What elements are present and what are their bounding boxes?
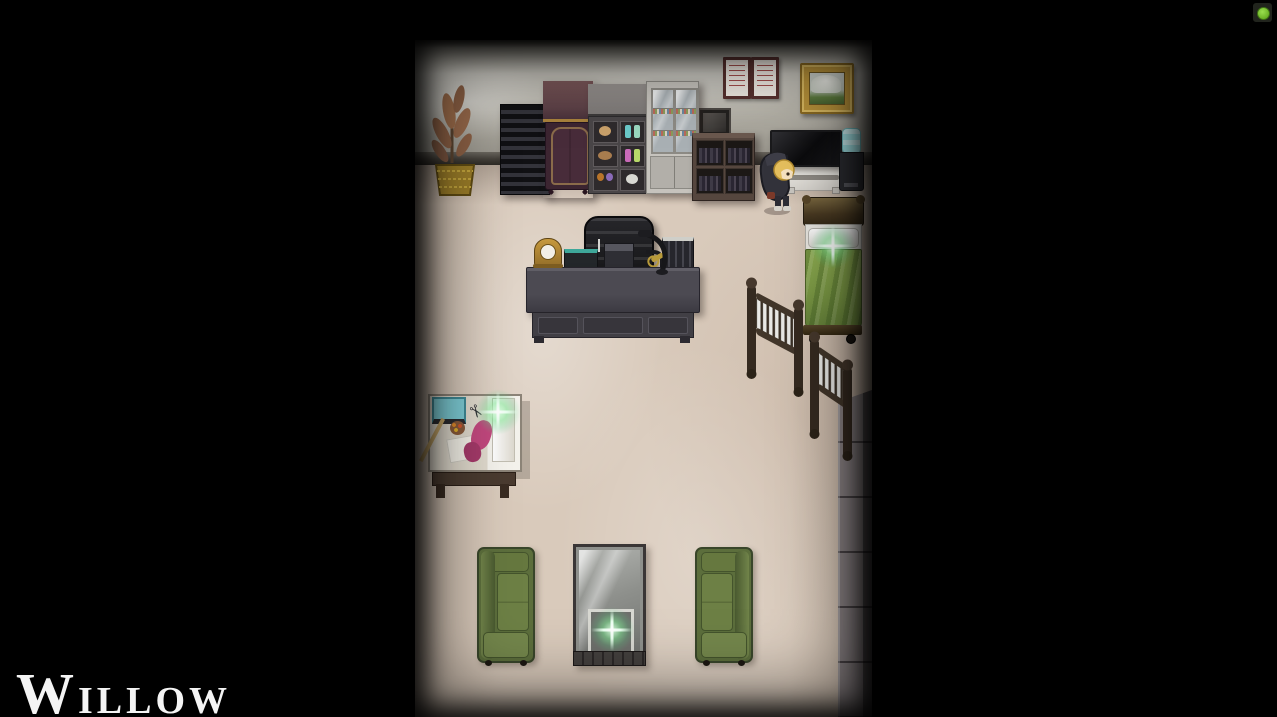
gold-framed-painting <box>800 63 854 114</box>
books <box>699 176 721 191</box>
desk-front-panel <box>532 312 694 338</box>
couch-armrest <box>483 632 529 658</box>
pastry-item <box>598 151 612 160</box>
display-case-body <box>588 116 649 194</box>
display-cell <box>593 169 618 191</box>
display-cell <box>620 145 645 167</box>
table-leg <box>436 484 445 498</box>
pen <box>598 239 600 252</box>
certificate-text-lines <box>729 65 745 89</box>
wall-display-content <box>703 113 726 132</box>
bookshelf-cubby <box>725 140 753 166</box>
display-cell <box>620 121 645 143</box>
certificate-frame-2 <box>751 57 779 99</box>
display-cell <box>620 169 645 191</box>
plate-item <box>626 174 638 184</box>
recording-indicator[interactable] <box>1252 2 1273 23</box>
couch-foot <box>738 660 745 666</box>
desk-lamp <box>630 227 670 275</box>
desk-drawer <box>648 317 688 334</box>
couch-right <box>695 547 753 663</box>
shelf-bottles <box>653 130 673 136</box>
bookshelf-cubby <box>696 140 724 166</box>
location-title-rest: ILLOW <box>78 680 231 717</box>
cooler-buttons <box>844 183 858 187</box>
shelf-bottles <box>676 108 696 114</box>
flower-item <box>606 173 613 181</box>
flower-item <box>597 173 604 181</box>
wardrobe-canopy <box>543 81 593 122</box>
wardrobe <box>543 81 593 198</box>
office-desk <box>526 267 698 343</box>
glass-pane <box>651 88 675 154</box>
books <box>728 176 750 191</box>
books <box>728 148 750 163</box>
sparkle-ray <box>812 245 854 248</box>
couch-armrest <box>701 632 747 658</box>
display-cell <box>593 121 618 143</box>
table-base <box>573 651 646 666</box>
plant-graphic <box>428 85 483 197</box>
certificate-text-lines <box>757 65 773 89</box>
couch-left <box>477 547 535 663</box>
character-sprite <box>757 148 797 216</box>
bottle-item <box>625 125 631 138</box>
sparkle-sewing-table[interactable] <box>475 389 521 435</box>
certificate-frame-1 <box>723 57 751 99</box>
couch-foot <box>520 660 527 666</box>
game-screen: ✂ <box>0 0 1277 717</box>
bookshelf-cubby <box>696 168 724 194</box>
railing-graphic <box>808 326 856 462</box>
sparkle-coffee-table[interactable] <box>589 607 635 653</box>
bookshelf-cubby <box>725 168 753 194</box>
couch-cushions <box>497 573 529 631</box>
sliding-doors <box>650 156 697 189</box>
stair-railing-lower <box>808 326 856 467</box>
desk-drawer <box>583 317 643 334</box>
player-character[interactable] <box>757 148 797 216</box>
sparkle-bed[interactable] <box>810 223 856 269</box>
desk-foot <box>534 336 544 343</box>
couch-foot <box>703 660 710 666</box>
shelf-bottles <box>653 108 673 114</box>
sparkle-ray <box>477 411 519 414</box>
bottle-item <box>634 125 640 138</box>
potted-plant <box>428 85 483 197</box>
sewing-machine <box>432 397 466 424</box>
water-cooler <box>839 128 862 189</box>
cake-item <box>599 126 611 136</box>
display-cell <box>593 145 618 167</box>
bookshelf <box>692 133 755 201</box>
stair-railing-upper <box>744 270 808 405</box>
bottle-item <box>625 149 631 162</box>
cooler-body <box>839 152 864 191</box>
mantel-clock <box>534 238 562 266</box>
painting-mountain <box>811 75 841 93</box>
wardrobe-legs <box>545 188 591 198</box>
location-title: WILLOW <box>16 660 231 717</box>
sparkle-ray <box>591 629 633 632</box>
location-title-initial: W <box>16 661 78 717</box>
couch-cushions <box>701 573 733 631</box>
water-bottle <box>842 128 861 154</box>
wardrobe-doors <box>551 127 589 185</box>
books <box>699 148 721 163</box>
display-case <box>588 84 647 192</box>
record-dot-icon <box>1257 7 1270 20</box>
bottle-item <box>634 149 640 162</box>
bed-headboard <box>803 197 864 226</box>
paint-palette <box>450 421 465 435</box>
desk-foot <box>680 336 690 343</box>
railing-graphic <box>744 270 808 400</box>
desk-top <box>526 267 700 313</box>
table-leg <box>500 484 509 498</box>
desk-drawer <box>538 317 578 334</box>
display-case-top <box>588 84 647 116</box>
room-viewport: ✂ <box>415 40 872 717</box>
couch-foot <box>485 660 492 666</box>
wardrobe-body <box>545 122 593 190</box>
